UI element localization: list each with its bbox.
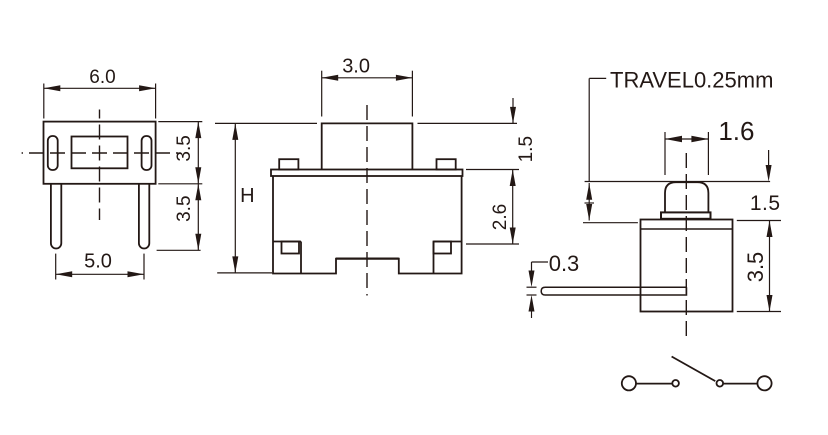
svg-text:3.0: 3.0: [342, 56, 370, 78]
svg-text:6.0: 6.0: [89, 67, 115, 88]
svg-text:2.6: 2.6: [490, 204, 511, 230]
svg-text:TRAVEL0.25mm: TRAVEL0.25mm: [610, 68, 773, 93]
svg-text:3.5: 3.5: [174, 135, 195, 161]
svg-text:3.5: 3.5: [743, 252, 768, 283]
svg-text:3.5: 3.5: [174, 195, 195, 221]
svg-text:1.5: 1.5: [516, 136, 537, 162]
svg-text:H: H: [240, 185, 254, 207]
svg-text:1.6: 1.6: [718, 116, 754, 146]
svg-text:0.3: 0.3: [549, 251, 580, 276]
svg-text:1.5: 1.5: [750, 192, 781, 215]
svg-text:5.0: 5.0: [84, 251, 112, 273]
